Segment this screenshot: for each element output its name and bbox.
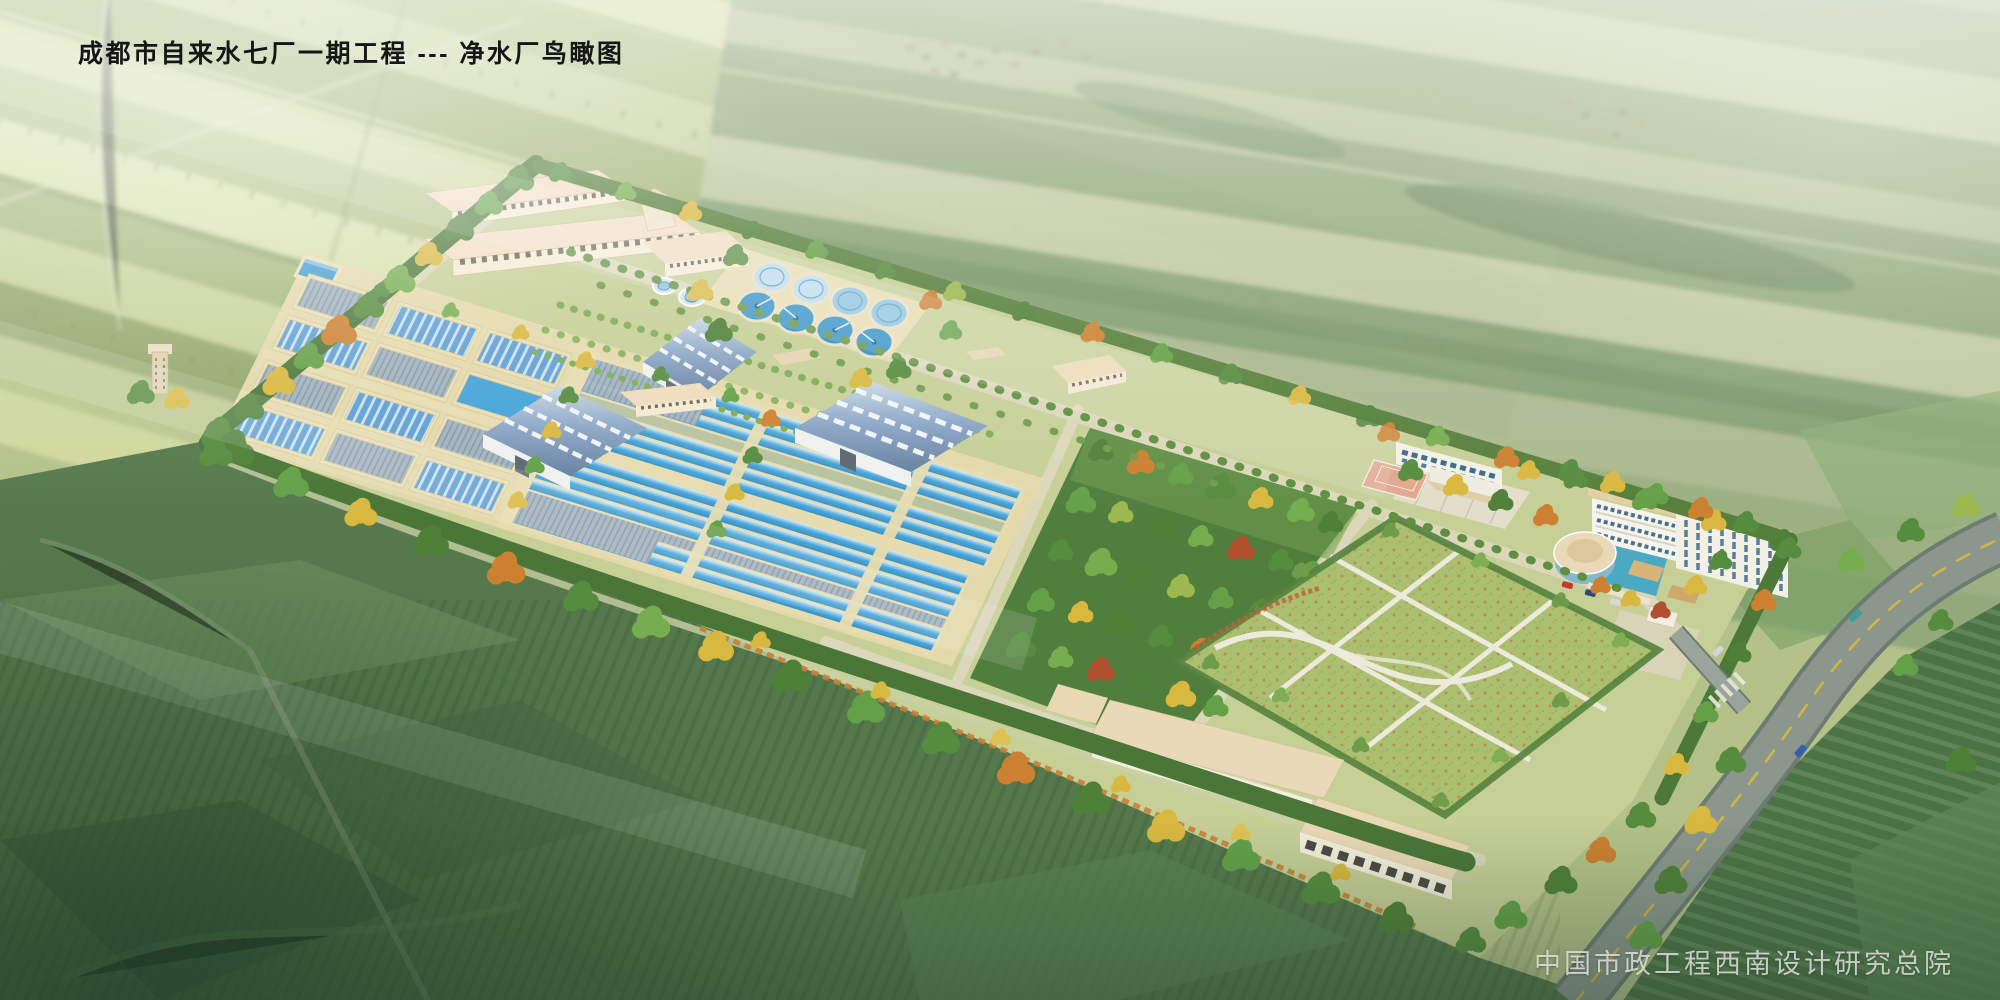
page-title: 成都市自来水七厂一期工程 --- 净水厂鸟瞰图 [78,34,624,70]
design-institute-credit: 中国市政工程西南设计研究总院 [1534,942,1954,981]
atmosphere-overlays [0,0,2000,1000]
rendering-canvas: 成都市自来水七厂一期工程 --- 净水厂鸟瞰图 中国市政工程西南设计研究总院 [0,0,2000,1000]
aerial-scene [0,0,2000,1000]
